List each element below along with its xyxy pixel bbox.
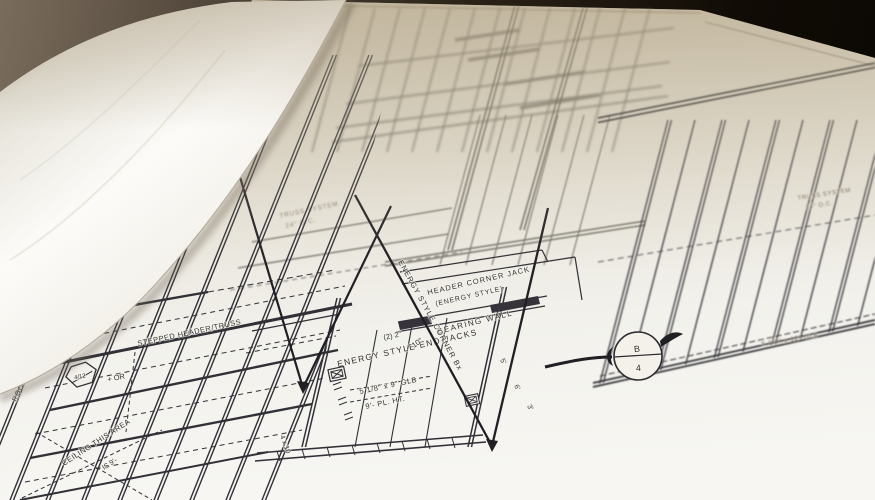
register-box-symbol [328,366,346,381]
blueprint-artwork: TRUSS SYSTEM 24" O.C. 5 1/8" x 12" GLB T… [0,0,875,500]
section-marker-number: 4 [635,363,641,373]
section-marker-letter: B [633,344,640,355]
blueprint-photo-scene: TRUSS SYSTEM 24" O.C. 5 1/8" x 12" GLB T… [0,0,875,500]
